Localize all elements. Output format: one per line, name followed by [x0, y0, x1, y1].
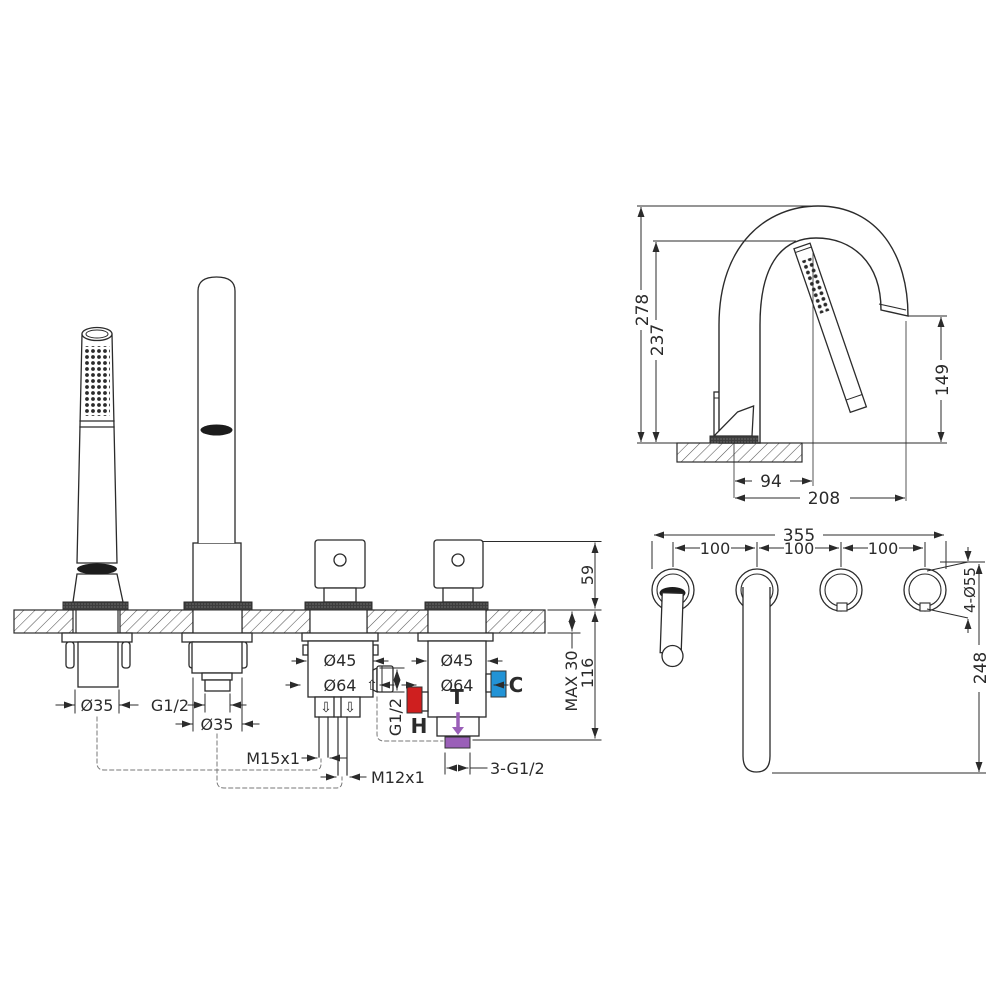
spout-shank-thread-tip — [205, 680, 230, 691]
cold-inlet-port — [491, 671, 506, 697]
diverter-flange — [302, 633, 378, 641]
mixed-outlet-port — [445, 737, 470, 748]
handle-index-notch — [837, 603, 847, 611]
dim-handshower-hole: Ø35 — [81, 696, 114, 715]
hole-circles — [652, 569, 946, 611]
dim-diverter-flange: Ø64 — [324, 676, 357, 695]
threaded-rod — [66, 642, 74, 668]
hot-label: H — [411, 714, 428, 738]
mounting-washer — [182, 633, 252, 642]
gooseneck-spout — [719, 206, 908, 443]
dim-spout-thread: G1/2 — [151, 696, 189, 715]
handshower-o-ring — [77, 564, 117, 575]
spout-shank — [192, 642, 242, 673]
dim-spout-hole: Ø35 — [201, 715, 234, 734]
dim-spout-outlet-height: 149 — [933, 364, 953, 396]
escutcheon-side — [710, 436, 758, 443]
dim-diverter-body: Ø45 — [324, 651, 357, 670]
dim-mixer-body: Ø45 — [441, 651, 474, 670]
front-view: ⇧ ⇩ ⇩ H C T — [14, 277, 601, 788]
handle-hole — [452, 554, 464, 566]
dim-handshower-offset: 94 — [760, 472, 782, 492]
spout-column — [198, 277, 235, 543]
dim-mixer-flange: Ø64 — [441, 676, 474, 695]
side-view: 278 237 149 94 208 — [633, 206, 953, 509]
mounting-washer — [62, 633, 132, 642]
spout-escutcheon — [184, 602, 252, 610]
dim-hole-spacing-3: 100 — [868, 539, 899, 558]
hot-inlet-port — [407, 687, 422, 713]
dim-rod-thread: M12x1 — [371, 768, 425, 787]
handshower-shank — [78, 642, 118, 687]
handshower-spray-face — [84, 346, 110, 416]
dim-spout-reach-side: 208 — [808, 489, 840, 509]
dim-side-port-thread: G1/2 — [386, 698, 405, 736]
spout-base — [193, 543, 241, 602]
dim-hole-spacing-1: 100 — [700, 539, 731, 558]
dim-height-above-deck: 59 — [578, 565, 597, 585]
threaded-rod — [122, 642, 130, 668]
handshower-escutcheon — [63, 602, 128, 610]
diverter-escutcheon — [305, 602, 372, 610]
handshower-grip-end — [662, 646, 683, 667]
diverter-side-port — [377, 666, 393, 692]
deck-side — [677, 443, 802, 462]
flow-up-arrow-icon: ⇧ — [366, 678, 378, 694]
handshower-base-cone — [73, 574, 123, 602]
dim-handshower-tip-height: 237 — [648, 324, 668, 356]
dim-inlet-threads: 3-G1/2 — [490, 759, 545, 778]
faucet-installation-drawing: ⇧ ⇩ ⇩ H C T — [0, 0, 1000, 1000]
dim-deck-thickness: MAX 30 — [562, 650, 581, 711]
flow-down-arrow-icon: ⇩ — [344, 700, 356, 716]
dim-total-height: 278 — [633, 294, 653, 326]
dim-hole-count-dia: 4-Ø55 — [961, 567, 979, 613]
handshower-unit — [62, 328, 132, 688]
dim-hole-spacing-2: 100 — [784, 539, 815, 558]
flow-down-arrow-icon: ⇩ — [320, 700, 332, 716]
handle-hole — [334, 554, 346, 566]
handshower-side — [794, 243, 866, 412]
top-view: 355 100 100 100 4-Ø55 248 — [652, 526, 991, 773]
technical-drawing-page: ⇧ ⇩ ⇩ H C T — [0, 0, 1000, 1000]
thermostat-flange — [418, 633, 493, 641]
thermostat-escutcheon — [425, 602, 488, 610]
spout-top-view — [743, 587, 770, 772]
cold-label: C — [509, 673, 524, 697]
dim-spout-reach-top: 248 — [971, 652, 991, 684]
spout-outlet — [201, 425, 233, 436]
dim-hose-thread: M15x1 — [246, 749, 300, 768]
top-dimensions — [652, 535, 986, 773]
handshower-grip-top-view — [660, 593, 683, 654]
